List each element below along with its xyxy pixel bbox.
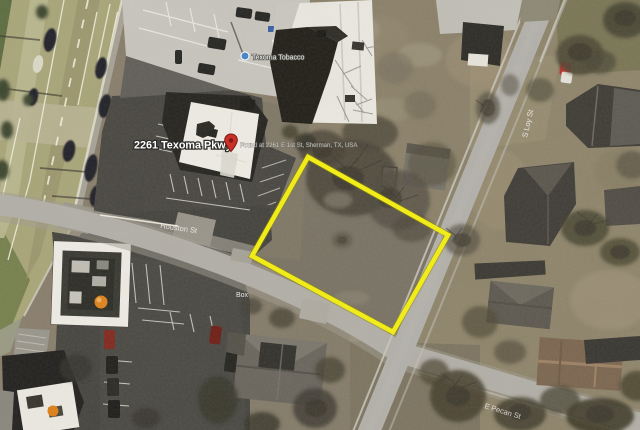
svg-text:2261 Texoma Pkwy: 2261 Texoma Pkwy [134,140,232,152]
svg-text:Found at 2261 E 1st St, Sherma: Found at 2261 E 1st St, Sherman, TX, USA [240,142,358,149]
svg-text:Box: Box [236,292,249,299]
svg-text:Texoma Tobacco: Texoma Tobacco [252,55,305,62]
